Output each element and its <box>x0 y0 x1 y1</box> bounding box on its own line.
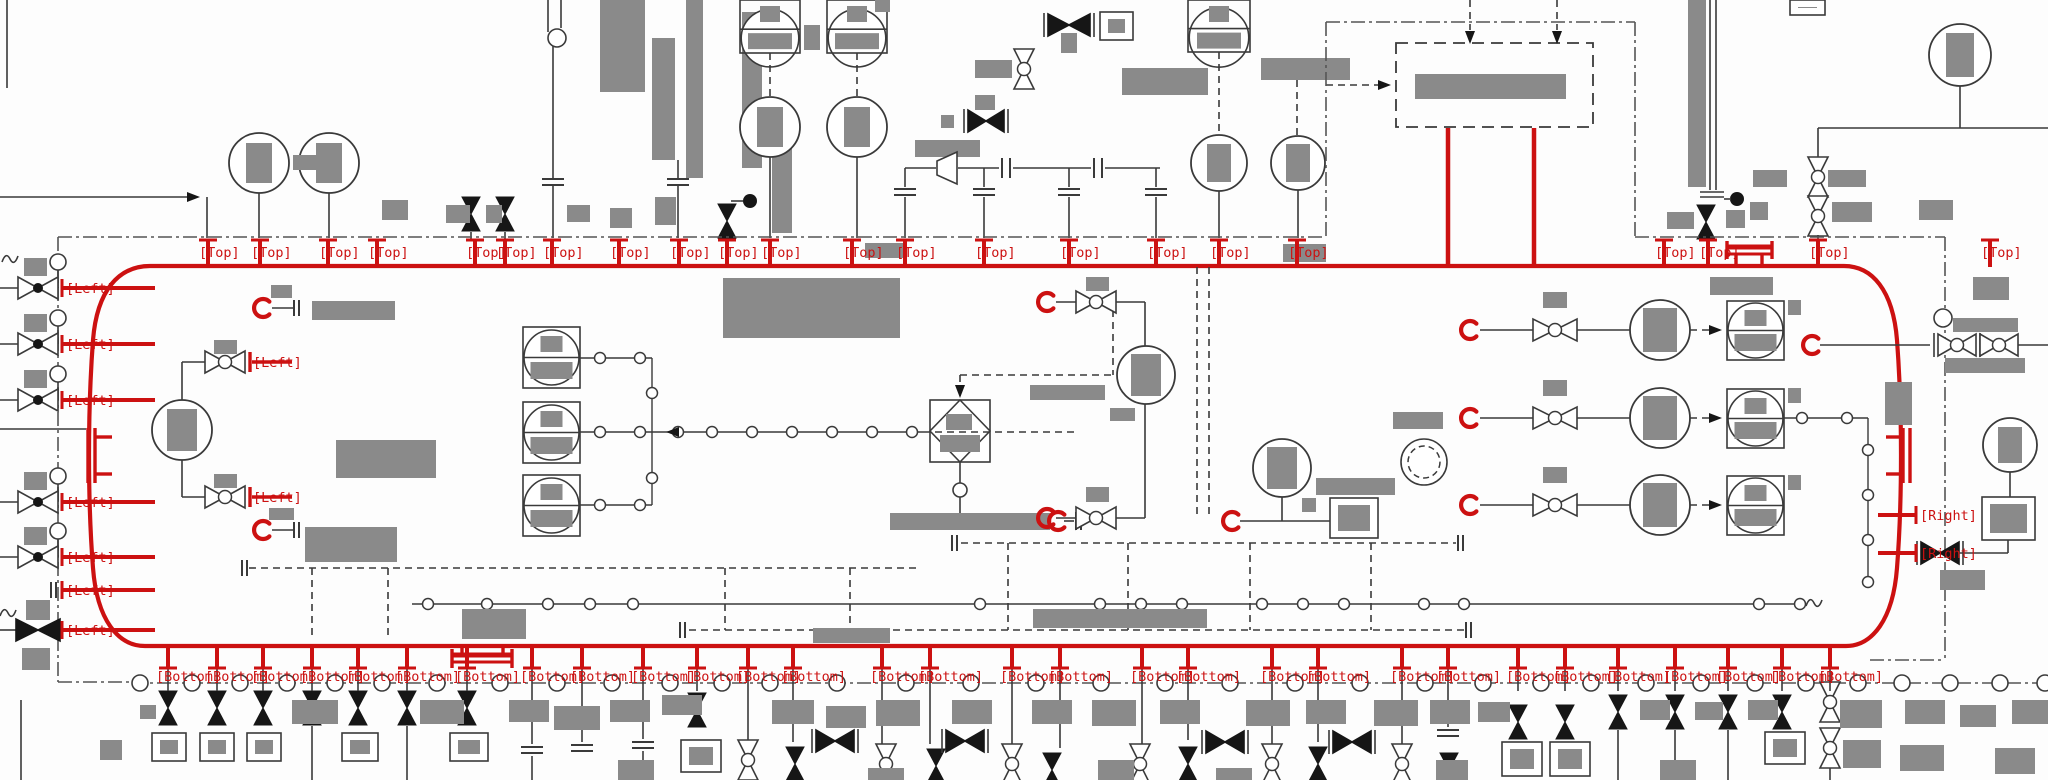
redaction-box <box>600 0 645 92</box>
valve-ball-dot <box>33 497 43 507</box>
redaction-box <box>1316 478 1395 495</box>
valve-globe-circle <box>1951 339 1964 352</box>
redaction-box <box>876 700 920 726</box>
nozzle-label: [Left] <box>253 355 302 371</box>
redaction-box <box>1160 700 1200 724</box>
circle-node <box>953 483 967 497</box>
redaction-box <box>1061 33 1077 53</box>
signal-link-node <box>647 388 658 399</box>
redaction-box <box>757 107 783 147</box>
valve-stem-circle <box>1812 171 1825 184</box>
logic-frame <box>930 400 990 462</box>
signal-link-node <box>975 599 986 610</box>
signal-link-node <box>635 427 646 438</box>
valve-closed-icon <box>1043 753 1061 780</box>
redaction-box <box>26 600 50 620</box>
flow-arrow-icon <box>1552 31 1562 44</box>
nozzle-label: [Left] <box>66 281 115 297</box>
signal-link-node <box>1797 413 1808 424</box>
redaction-box <box>312 301 395 320</box>
signal-link-node <box>1863 445 1874 456</box>
nozzle-label: [Bottom] <box>1306 669 1371 685</box>
redaction-box <box>1643 396 1677 440</box>
redaction-box <box>1092 700 1136 726</box>
redaction-box <box>1735 509 1777 526</box>
nozzle-label: [Top] <box>319 245 360 261</box>
redaction-box <box>1710 277 1773 295</box>
redaction-box <box>940 435 980 452</box>
redaction-box <box>1745 485 1767 501</box>
redaction-box <box>1688 0 1706 187</box>
signal-link-node <box>635 500 646 511</box>
signal-link-node <box>1257 599 1268 610</box>
nozzle-label: [Top] <box>1288 245 1329 261</box>
redaction-box <box>1753 170 1787 187</box>
redaction-box <box>246 143 272 183</box>
nozzle-label: [Bottom] <box>1048 669 1113 685</box>
nozzle-label: [Bottom] <box>1176 669 1241 685</box>
valve-closed-icon <box>1697 205 1715 239</box>
valve-globe-circle <box>1090 512 1103 525</box>
redaction-box <box>531 362 573 379</box>
signal-link-node <box>1136 599 1147 610</box>
valve-icon <box>816 730 854 752</box>
redaction-box <box>167 409 197 451</box>
redaction-box <box>1246 700 1290 726</box>
valve-closed-icon <box>1179 747 1197 780</box>
nozzle-label: [Left] <box>253 490 302 506</box>
redaction-box <box>1828 170 1866 187</box>
valve-globe-circle <box>1549 412 1562 425</box>
redaction-box <box>1946 33 1974 77</box>
boundary-node <box>2037 675 2048 691</box>
signal-link-node <box>595 353 606 364</box>
signal-link-node <box>1795 599 1806 610</box>
redaction-box <box>1998 427 2022 463</box>
redaction-box <box>160 740 178 754</box>
signal-link-node <box>1419 599 1430 610</box>
redaction-box <box>531 437 573 454</box>
redaction-box <box>22 648 50 670</box>
redaction-box <box>531 510 573 527</box>
redaction-box <box>255 740 273 754</box>
redaction-box <box>24 527 47 545</box>
pid-diagram: [Top][Top][Top][Top][Top][Top][Top][Top]… <box>0 0 2048 780</box>
signal-link-node <box>585 599 596 610</box>
signal-link-node <box>1095 599 1106 610</box>
valve-closed-icon <box>786 747 804 780</box>
redaction-box <box>1415 74 1566 99</box>
nozzle-label: [Bottom] <box>395 669 460 685</box>
redaction-box <box>1032 700 1072 724</box>
redaction-box <box>847 6 867 22</box>
signal-link-node <box>747 427 758 438</box>
redaction-box <box>1430 700 1470 724</box>
redaction-box <box>1640 700 1670 720</box>
redaction-box <box>610 208 632 228</box>
redaction-box <box>1945 358 2025 373</box>
valve-stem-circle <box>1812 210 1825 223</box>
redaction-box <box>567 205 590 222</box>
circle-node <box>50 468 66 484</box>
redaction-box <box>618 760 654 780</box>
nozzle-label: [Bottom] <box>1436 669 1501 685</box>
nozzle-label: [Top] <box>496 245 537 261</box>
flow-arrow-icon <box>1465 31 1475 44</box>
redaction-box <box>1436 760 1468 780</box>
redaction-box <box>952 700 992 724</box>
redaction-box <box>1302 498 1316 512</box>
circle-node <box>50 254 66 270</box>
redaction-box <box>1098 760 1134 780</box>
valve-closed-icon <box>159 691 177 725</box>
signal-link-node <box>482 599 493 610</box>
redaction-box <box>975 60 1012 78</box>
redaction-box <box>24 472 47 490</box>
valve-icon <box>1333 731 1371 753</box>
redaction-box <box>1990 504 2027 533</box>
valve-stem-circle <box>1824 696 1837 709</box>
nozzle-label: [Top] <box>368 245 409 261</box>
redaction-box <box>24 314 47 332</box>
valve-stem-circle <box>1134 758 1147 771</box>
redaction-box <box>1660 760 1696 780</box>
nozzle-label: [Top] <box>975 245 1016 261</box>
nozzle-label: [Top] <box>1210 245 1251 261</box>
signal-link-node <box>543 599 554 610</box>
redaction-box <box>100 740 122 760</box>
redaction-box <box>868 768 904 780</box>
redaction-box <box>1953 318 2018 332</box>
redaction-box <box>1840 700 1882 728</box>
valve-closed-icon <box>718 204 736 238</box>
nozzle-label: [Bottom] <box>570 669 635 685</box>
pid-viewer-canvas: [Top][Top][Top][Top][Top][Top][Top][Top]… <box>0 0 2048 780</box>
redaction-box <box>509 700 549 722</box>
redaction-box <box>336 440 436 478</box>
redaction-box <box>1750 202 1768 220</box>
line-break-icon <box>2 256 18 263</box>
redaction-box <box>316 143 342 183</box>
valve-closed-icon <box>398 691 416 725</box>
redaction-box <box>140 705 156 719</box>
valve-closed-icon <box>349 691 367 725</box>
signal-link-node <box>1754 599 1765 610</box>
nozzle-label: [Top] <box>718 245 759 261</box>
redaction-box <box>1030 385 1105 400</box>
redaction-box <box>554 706 600 730</box>
redaction-box <box>1286 144 1310 182</box>
redaction-box <box>1110 408 1135 421</box>
signal-link-node <box>647 473 658 484</box>
redaction-box <box>1745 398 1767 414</box>
nozzle-label: [Right] <box>1920 508 1977 524</box>
redaction-box <box>271 285 292 298</box>
redaction-box <box>1558 749 1582 769</box>
valve-globe-circle <box>1090 296 1103 309</box>
valve-icon <box>16 619 60 641</box>
nozzle-label: [Top] <box>1981 245 2022 261</box>
redaction-box <box>1543 380 1567 396</box>
redaction-box <box>1108 19 1125 33</box>
circle-node <box>50 310 66 326</box>
redaction-box <box>826 706 866 728</box>
redaction-box <box>1033 609 1207 628</box>
nozzle-label: [Top] <box>670 245 711 261</box>
redaction-box <box>541 484 563 500</box>
valve-ball-dot <box>33 552 43 562</box>
nozzle-label: [Bottom] <box>1818 669 1883 685</box>
nozzle-label: [Top] <box>251 245 292 261</box>
signal-link-node <box>635 353 646 364</box>
valve-closed-icon <box>254 691 272 725</box>
valve-stem-circle <box>1824 742 1837 755</box>
redaction-box <box>1510 749 1534 769</box>
valve-globe-circle <box>1993 339 2006 352</box>
valve-closed-icon <box>1309 747 1327 780</box>
valve-stem-circle <box>1396 758 1409 771</box>
redaction-box <box>420 700 464 724</box>
redaction-box <box>24 258 47 276</box>
nozzle-label: [Bottom] <box>918 669 983 685</box>
signal-link-node <box>595 500 606 511</box>
redaction-box <box>1788 300 1801 315</box>
nozzle-label: [Top] <box>761 245 802 261</box>
redaction-box <box>1726 210 1745 228</box>
nozzle-label: [Top] <box>1809 245 1850 261</box>
signal-link-node <box>1863 577 1874 588</box>
valve-icon <box>1048 14 1090 36</box>
nozzle-label: [Left] <box>66 583 115 599</box>
signal-link-node <box>1298 599 1309 610</box>
redaction-box <box>1885 382 1912 425</box>
redaction-box <box>1773 739 1797 757</box>
valve-globe-circle <box>1549 324 1562 337</box>
circle-node <box>50 523 66 539</box>
redaction-box <box>655 197 676 225</box>
nozzle-label: [Left] <box>66 495 115 511</box>
redaction-box <box>1695 702 1723 720</box>
redaction-box <box>915 140 980 157</box>
redaction-box <box>1667 212 1694 229</box>
redaction-box <box>1306 700 1346 724</box>
redaction-box <box>1393 412 1443 429</box>
redaction-box <box>462 609 526 639</box>
valve-globe-circle <box>1549 499 1562 512</box>
nozzle-label: [Left] <box>66 550 115 566</box>
redaction-box <box>1643 483 1677 527</box>
redaction-box <box>1788 388 1801 403</box>
valve-stem-circle <box>1006 758 1019 771</box>
flow-arrow-icon <box>187 192 200 202</box>
redaction-box <box>941 115 954 128</box>
redaction-box <box>975 95 995 110</box>
redaction-box <box>1086 487 1109 502</box>
redaction-box <box>541 336 563 352</box>
circle-node <box>548 29 566 47</box>
redaction-box <box>890 513 1050 530</box>
nozzle-label: [Top] <box>199 245 240 261</box>
redaction-box <box>1131 354 1161 396</box>
redaction-box <box>1735 334 1777 351</box>
redaction-box <box>1478 702 1510 722</box>
redaction-box <box>1338 505 1370 531</box>
redaction-box <box>723 278 900 338</box>
nozzle-label: [Bottom] <box>1606 669 1671 685</box>
nozzle-label: [Top] <box>896 245 937 261</box>
boundary-node <box>1942 675 1958 691</box>
nozzle-label: [Top] <box>1655 245 1696 261</box>
redaction-box <box>1748 700 1778 720</box>
redaction-box <box>760 6 780 22</box>
signal-link-node <box>827 427 838 438</box>
valve-ball-dot <box>33 339 43 349</box>
redaction-box <box>458 740 480 754</box>
valve-icon <box>1206 731 1244 753</box>
redaction-box <box>1745 310 1767 326</box>
valve-ball-dot <box>33 395 43 405</box>
redaction-box <box>1798 7 1817 8</box>
valve-closed-icon <box>208 691 226 725</box>
nozzle-label: [Top] <box>843 245 884 261</box>
redaction-box <box>214 474 237 488</box>
redaction-box <box>652 38 675 160</box>
nozzle-label: [Top] <box>1060 245 1101 261</box>
signal-link-node <box>1459 599 1470 610</box>
junction-dot <box>743 194 757 208</box>
redaction-box <box>208 740 226 754</box>
redaction-box <box>1122 68 1208 95</box>
valve-closed-icon <box>927 749 945 780</box>
valve-ball-dot <box>33 283 43 293</box>
redaction-box <box>686 0 703 178</box>
redaction-box <box>1086 277 1109 291</box>
redaction-box <box>1995 748 2035 774</box>
redaction-box <box>293 155 318 170</box>
redaction-box <box>1207 144 1231 182</box>
valve-icon <box>946 730 984 752</box>
nozzle-label: [Bottom] <box>781 669 846 685</box>
redaction-box <box>446 205 470 223</box>
redaction-box <box>1374 700 1418 726</box>
redaction-box <box>1919 200 1953 220</box>
valve-closed-icon <box>1609 695 1627 729</box>
redaction-box <box>1900 745 1944 771</box>
signal-link-node <box>867 427 878 438</box>
circle-node <box>50 366 66 382</box>
valve-stem-circle <box>1266 758 1279 771</box>
redaction-box <box>292 700 338 724</box>
signal-link-node <box>707 427 718 438</box>
redaction-box <box>662 695 702 715</box>
redaction-box <box>382 200 408 220</box>
nozzle-label: [Left] <box>66 337 115 353</box>
redaction-box <box>844 107 870 147</box>
valve-icon <box>968 110 1004 132</box>
boundary-node <box>1992 675 2008 691</box>
redaction-box <box>610 700 650 722</box>
signal-link-node <box>787 427 798 438</box>
redaction-box <box>1216 768 1252 780</box>
line-break-icon <box>0 610 16 617</box>
junction-dot <box>1730 192 1744 206</box>
redaction-box <box>2012 700 2048 724</box>
redaction-box <box>689 747 713 765</box>
redaction-box <box>804 25 820 50</box>
nozzle-label: [Left] <box>66 393 115 409</box>
redaction-box <box>1197 33 1241 49</box>
redaction-box <box>1973 277 2009 300</box>
redaction-box <box>835 33 879 49</box>
redaction-box <box>1543 292 1567 308</box>
signal-link-node <box>1842 413 1853 424</box>
nozzle-label: [Bottom] <box>455 669 520 685</box>
redaction-box <box>1788 475 1801 490</box>
redaction-box <box>1905 700 1945 724</box>
redaction-box <box>875 0 890 12</box>
redaction-box <box>1843 740 1881 768</box>
boundary-node <box>1894 675 1910 691</box>
valve-closed-icon <box>1509 705 1527 739</box>
signal-link-node <box>1863 490 1874 501</box>
signal-link-node <box>628 599 639 610</box>
signal-link-node <box>423 599 434 610</box>
circle-node <box>1934 309 1952 327</box>
redaction-box <box>1267 447 1297 489</box>
valve-globe-circle <box>219 356 232 369</box>
boundary-node <box>132 675 148 691</box>
valve-stem-circle <box>1018 63 1031 76</box>
valve-globe-circle <box>219 491 232 504</box>
redaction-box <box>305 527 397 562</box>
nozzle-label: [Right] <box>1920 546 1977 562</box>
redaction-box <box>350 740 370 754</box>
redaction-box <box>748 33 792 49</box>
flow-arrow-icon <box>1378 80 1391 90</box>
signal-link-node <box>1863 535 1874 546</box>
nozzle-label: [Top] <box>543 245 584 261</box>
redaction-box <box>1960 705 1996 727</box>
redaction-box <box>24 370 47 388</box>
redaction-box <box>486 205 502 223</box>
signal-link-node <box>1177 599 1188 610</box>
redaction-box <box>772 700 814 724</box>
valve-stem-circle <box>742 754 755 767</box>
redaction-box <box>541 411 563 427</box>
redaction-box <box>1735 422 1777 439</box>
redaction-box <box>1832 202 1872 222</box>
redaction-box <box>946 414 972 430</box>
valve-closed-icon <box>1556 705 1574 739</box>
signal-link-node <box>595 427 606 438</box>
nozzle-label: [Left] <box>66 623 115 639</box>
redaction-box <box>1940 570 1985 590</box>
signal-link-node <box>1339 599 1350 610</box>
redaction-box <box>813 628 890 643</box>
signal-link-node <box>907 427 918 438</box>
redaction-box <box>214 340 237 354</box>
redaction-box <box>1261 58 1350 80</box>
nozzle-label: [Top] <box>1147 245 1188 261</box>
nozzle-label: [Top] <box>610 245 651 261</box>
redaction-box <box>1643 308 1677 352</box>
redaction-box <box>1543 467 1567 483</box>
redaction-box <box>1209 6 1229 22</box>
nozzle-label: [Top] <box>1699 245 1740 261</box>
redaction-box <box>269 508 294 520</box>
